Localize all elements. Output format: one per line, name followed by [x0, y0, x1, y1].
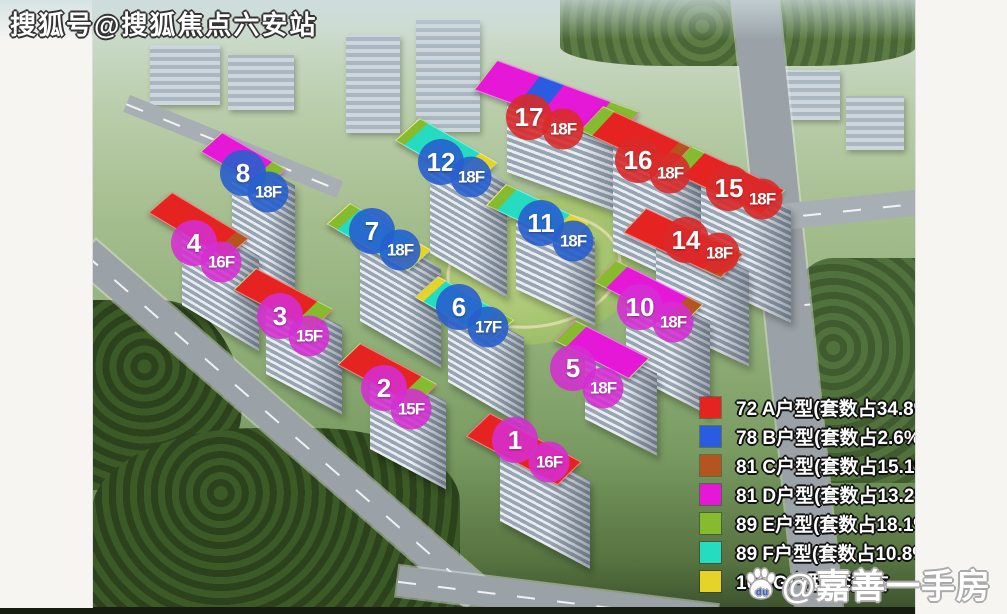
legend-label-magenta: 81 D户型(套数占13.2%) [736, 481, 938, 508]
photo-bottom-edge [0, 607, 915, 614]
legend-label-orange: 81 C户型(套数占15.1%) [736, 452, 938, 479]
building-16-floor-badge: 18F [650, 153, 691, 194]
legend-swatch-blue [700, 426, 721, 447]
legend-swatch-red [700, 397, 721, 418]
watermark-top-left: 搜狐号@搜狐焦点六安站 [10, 5, 317, 42]
legend-label-red: 72 A户型(套数占34.8%) [736, 394, 937, 421]
legend-item-red: 72 A户型(套数占34.8%) [700, 393, 938, 422]
legend-swatch-magenta [700, 484, 721, 505]
legend-item-orange: 81 C户型(套数占15.1%) [700, 451, 938, 480]
right-white-margin [915, 0, 1007, 614]
legend-label-blue: 78 B户型(套数占2.6%) [736, 423, 927, 450]
baidu-paw-icon: du [743, 567, 779, 601]
building-6-floor-badge: 17F [468, 307, 509, 348]
legend-item-green: 89 E户型(套数占18.1%) [700, 509, 938, 538]
screenshot-canvas: 1718F818F1218F1618F1518F1118F1418F1018F7… [0, 0, 1007, 614]
paw-du-text: du [756, 587, 769, 597]
bg-tower [346, 35, 400, 133]
building-12-floor-badge: 18F [451, 157, 492, 198]
watermark-bottom-right-text: @嘉善一手房 [782, 559, 991, 608]
legend-swatch-orange [700, 455, 721, 476]
legend-swatch-green [700, 513, 721, 534]
building-14-floor-badge: 18F [699, 233, 740, 274]
legend-swatch-yellow [700, 571, 721, 592]
building-8-floor-badge: 18F [248, 172, 289, 213]
building-4-floor-badge: 16F [201, 242, 242, 283]
legend-swatch-cyan [700, 542, 721, 563]
building-1-floor-badge: 16F [529, 442, 570, 483]
building-5-floor-badge: 18F [583, 368, 624, 409]
building-15-floor-badge: 18F [742, 179, 783, 220]
watermark-bottom-right: du @嘉善一手房 [743, 559, 991, 608]
legend-label-green: 89 E户型(套数占18.1%) [736, 510, 937, 537]
building-7-floor-badge: 18F [380, 230, 421, 271]
bg-building [150, 45, 220, 105]
building-2-floor-badge: 15F [391, 389, 432, 430]
building-3-floor-badge: 15F [289, 316, 330, 357]
bg-building [846, 96, 904, 150]
legend-item-magenta: 81 D户型(套数占13.2%) [700, 480, 938, 509]
left-white-margin [0, 36, 93, 608]
building-10-floor-badge: 18F [653, 302, 694, 343]
building-17-floor-badge: 18F [543, 109, 584, 150]
building-11-floor-badge: 18F [553, 221, 594, 262]
bg-building [228, 55, 294, 110]
legend-item-blue: 78 B户型(套数占2.6%) [700, 422, 938, 451]
